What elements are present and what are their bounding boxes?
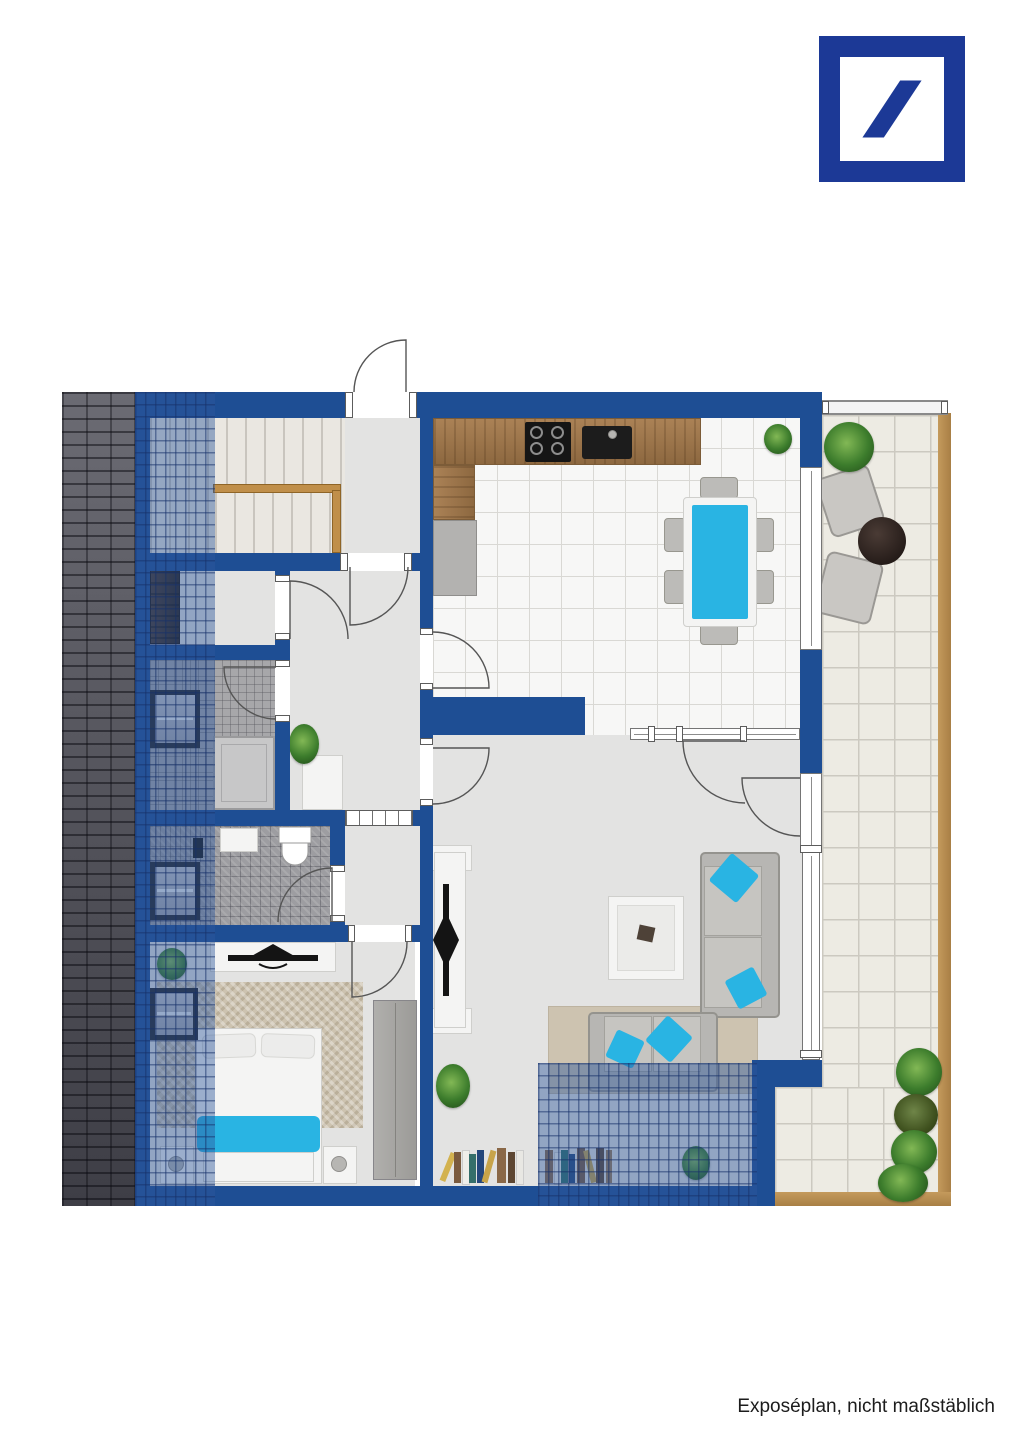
- kitchen-faucet: [608, 430, 617, 439]
- living-plant-left: [436, 1064, 470, 1108]
- wall-kitchen-living: [433, 697, 585, 735]
- burner-icon: [530, 442, 543, 455]
- book: [508, 1152, 515, 1183]
- partition-jamb-b: [676, 726, 683, 742]
- bath2-jamb-top: [330, 865, 345, 872]
- stair-rail-horizontal: [213, 484, 341, 493]
- wall-top-kitchen: [417, 392, 822, 418]
- book: [454, 1152, 461, 1183]
- tv-console-living: [434, 852, 466, 1028]
- bath2-door-opening: [330, 872, 345, 915]
- living-window-right-upper: [800, 773, 822, 852]
- bedroom-jamb-left: [348, 925, 355, 942]
- terrace-border-right: [938, 413, 951, 1206]
- exposeplan-page: { "caption": { "text": "Exposéplan, nich…: [0, 0, 1018, 1440]
- entrance-jamb-right: [409, 392, 417, 418]
- stair-hall-door-opening: [348, 553, 404, 571]
- wall-bath2-right-a: [330, 826, 345, 865]
- stair-hall-jamb-left: [340, 553, 348, 571]
- dining-table-top: [692, 505, 748, 619]
- burner-icon: [551, 442, 564, 455]
- plan-caption: Exposéplan, nicht maßstäblich: [595, 1396, 995, 1418]
- bath1-door-opening: [275, 667, 290, 715]
- deutsche-bank-logo: [819, 36, 965, 182]
- bed-footboard: [203, 1152, 314, 1182]
- terrace-plant-1: [896, 1048, 942, 1096]
- living-jamb-bottom: [420, 799, 433, 806]
- dining-chair-top: [700, 477, 738, 499]
- book: [469, 1154, 476, 1183]
- glass-partition-dining-living: [630, 728, 800, 740]
- roof-overlay-bottom-right: [538, 1063, 757, 1206]
- living-door-opening: [420, 745, 433, 799]
- coffee-table-decor: [637, 925, 656, 943]
- glazing-mullion-a: [800, 845, 822, 853]
- terrace-border-bottom: [775, 1192, 951, 1206]
- stair-hall-jamb-right: [404, 553, 412, 571]
- partition-jamb-c: [740, 726, 747, 742]
- kitchen-window-right: [800, 467, 822, 650]
- wall-mid-vertical-a: [420, 416, 433, 628]
- wall-kitchen-right-upper: [800, 416, 822, 467]
- kitchen-appliance-block: [433, 520, 477, 596]
- kitchen-jamb-top: [420, 628, 433, 635]
- stair-lower-flight: [215, 493, 332, 553]
- wall-living-right-upper: [800, 737, 822, 773]
- bath1-jamb-bottom: [275, 715, 290, 722]
- bedroom-door-opening: [355, 925, 405, 942]
- wall-hall-left-a: [275, 553, 290, 575]
- burner-icon: [530, 426, 543, 439]
- terrace-round-table: [858, 517, 906, 565]
- shower: [213, 736, 275, 810]
- bed-pillow-right: [261, 1033, 316, 1059]
- tv-sideboard-bedroom: [210, 942, 336, 972]
- db-slash-icon: [841, 58, 943, 160]
- wall-hall-left-b: [275, 640, 290, 660]
- storage-jamb-top: [275, 575, 290, 582]
- bedroom-jamb-right: [405, 925, 412, 942]
- burner-icon: [551, 426, 564, 439]
- wall-mid-vertical-b: [420, 690, 433, 738]
- roof-slope-strip: [62, 392, 135, 1206]
- book: [497, 1148, 506, 1183]
- living-jamb-top: [420, 738, 433, 745]
- wall-kitchen-right-lower: [800, 650, 822, 737]
- kitchen-counter-left: [433, 465, 475, 520]
- roof-overlay-left: [135, 392, 215, 1206]
- bed-cyan-throw: [197, 1116, 320, 1152]
- entry-landing-floor: [345, 416, 420, 553]
- entrance-jamb-left: [345, 392, 353, 418]
- terrace-bush: [824, 422, 874, 472]
- living-glazing-right: [802, 852, 820, 1060]
- kitchen-jamb-bottom: [420, 683, 433, 690]
- hallway-plant: [289, 724, 319, 764]
- washbasin-lower: [220, 828, 258, 852]
- storage-door-opening: [275, 582, 290, 633]
- kitchen-sink: [582, 426, 632, 459]
- sliding-door-niche: [345, 810, 413, 826]
- wall-niche-filler: [413, 810, 420, 826]
- hallway-cabinet: [302, 755, 343, 810]
- hallway-niche-floor: [345, 826, 420, 925]
- railing-post-left: [822, 401, 829, 414]
- terrace-plant-4: [878, 1164, 928, 1202]
- wardrobe: [373, 1000, 417, 1180]
- cooktop: [525, 422, 571, 462]
- glazing-mullion-b: [800, 1050, 822, 1058]
- wall-living-right-jut: [752, 1060, 822, 1087]
- bath1-jamb-top: [275, 660, 290, 667]
- wall-mid-vertical-c: [420, 806, 433, 1190]
- railing-post-right: [941, 401, 948, 414]
- bath2-jamb-bottom: [330, 915, 345, 922]
- entrance-door-opening: [353, 392, 409, 418]
- stair-rail-vertical: [332, 490, 341, 553]
- kitchen-door-opening: [420, 635, 433, 683]
- kitchen-plant: [764, 424, 792, 454]
- partition-jamb-a: [648, 726, 655, 742]
- entrance-door-swing: [354, 340, 406, 392]
- terrace-railing: [822, 400, 948, 415]
- nightstand-lamp-right: [331, 1156, 347, 1172]
- storage-jamb-bottom: [275, 633, 290, 640]
- wall-hall-left-c: [275, 722, 290, 810]
- book: [516, 1150, 524, 1185]
